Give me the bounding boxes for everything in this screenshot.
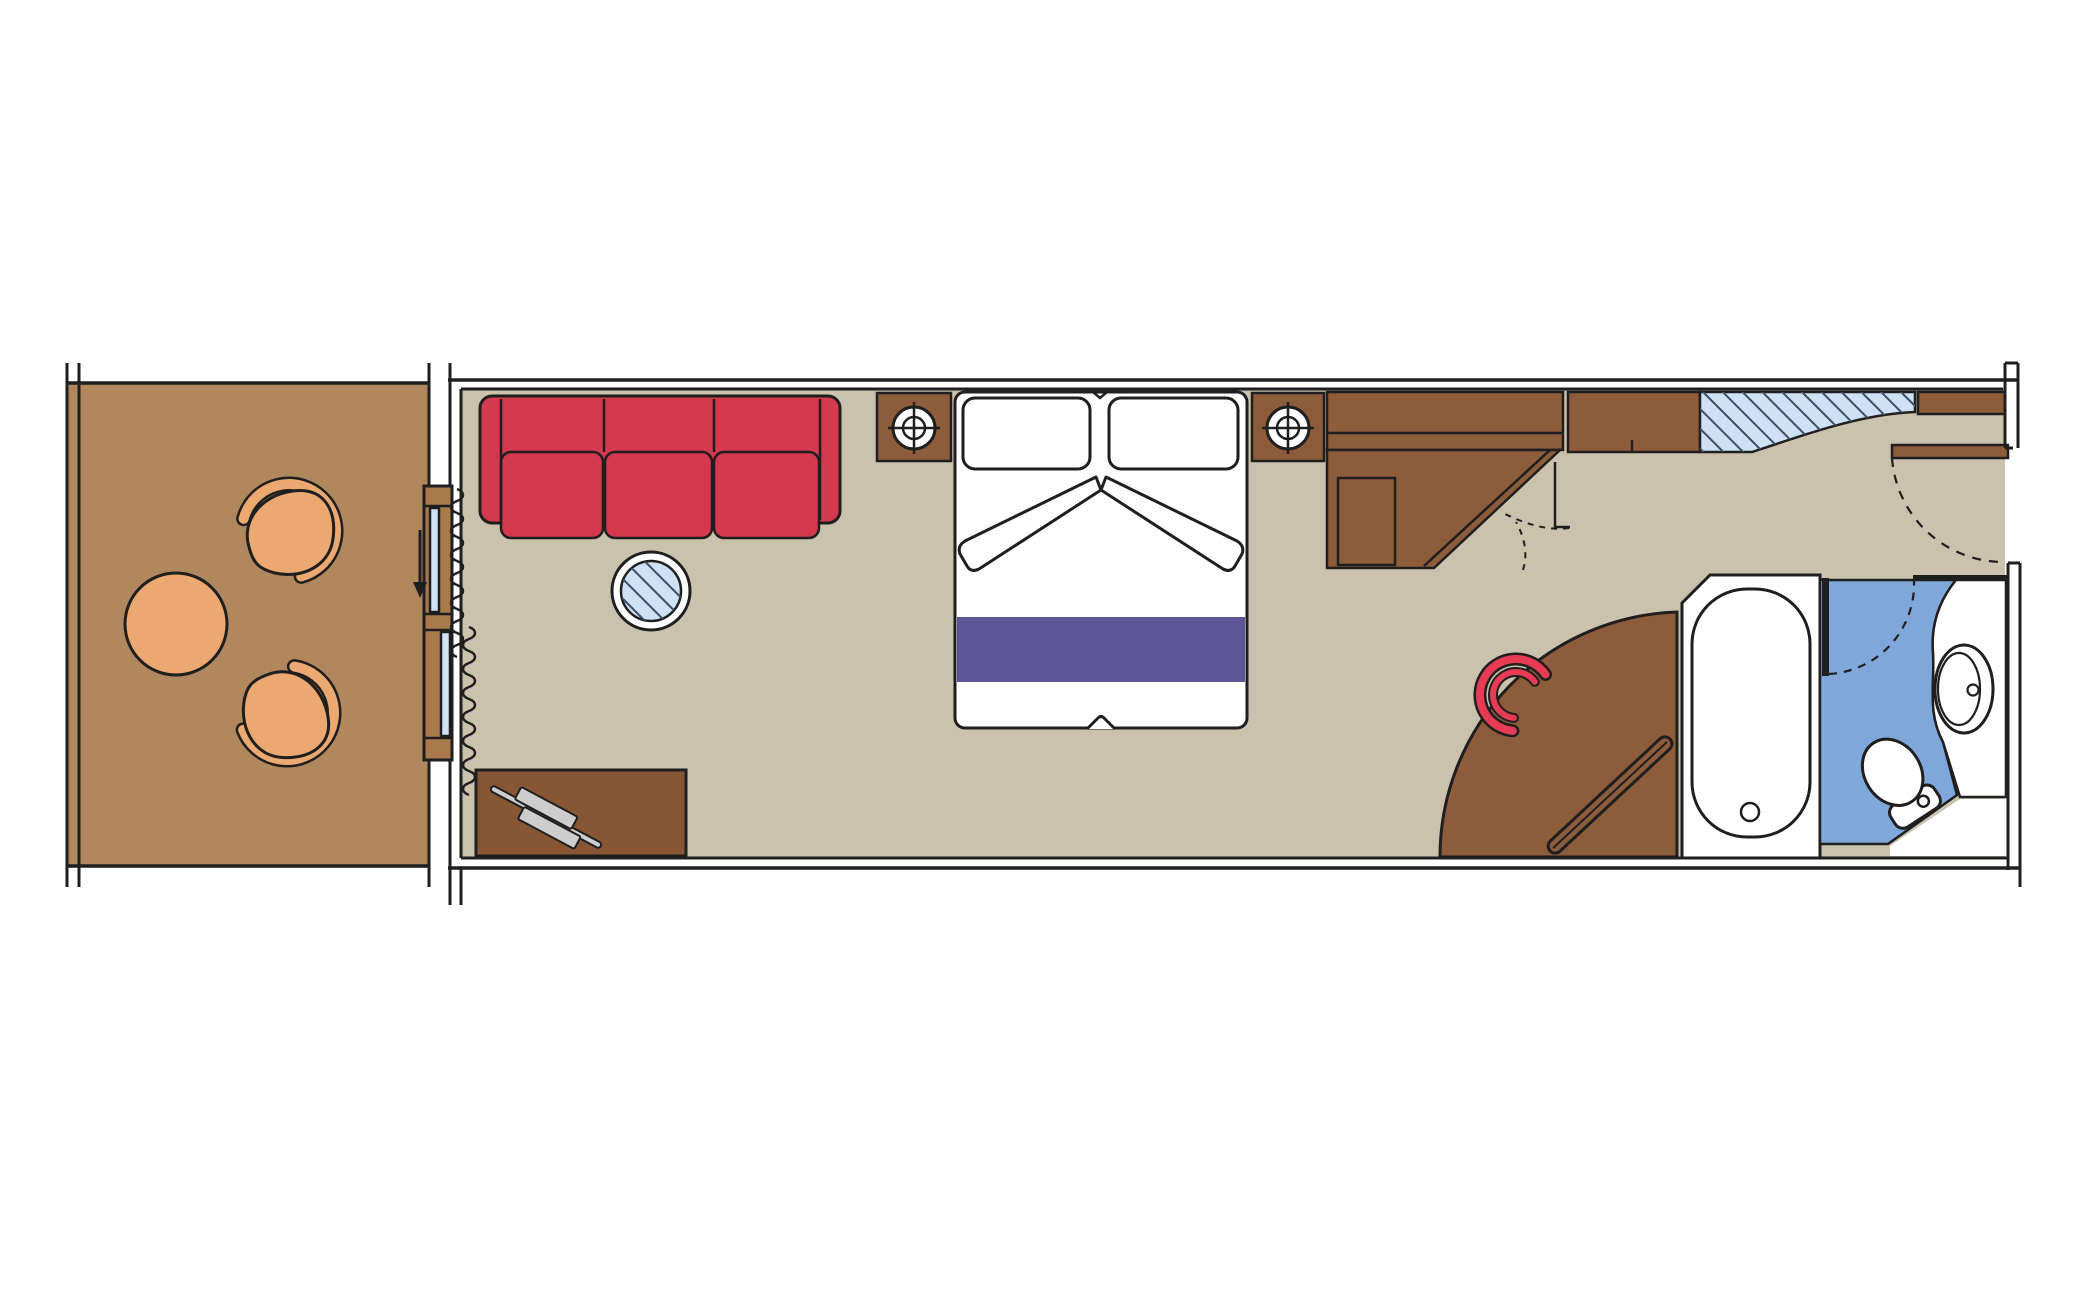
pillow <box>963 398 1090 469</box>
door-glass-pane <box>430 508 439 612</box>
balcony-armchair-1 <box>244 484 336 576</box>
floor-plan-page: Stateroom floor plan with private balcon… <box>0 0 2099 1299</box>
bed-runner <box>957 617 1245 682</box>
nightstand-right <box>1252 393 1324 461</box>
sofa-cushion <box>714 452 819 538</box>
sofa-cushion <box>501 452 603 538</box>
sideboard-desk <box>476 770 686 859</box>
wardrobe-safe <box>1338 478 1395 565</box>
bathtub <box>1692 589 1810 837</box>
door-glass-pane <box>441 632 450 736</box>
washbasin <box>1935 645 1993 733</box>
minibar-cabinet <box>1568 392 1700 452</box>
balcony-table <box>125 573 227 675</box>
bathroom-door-leaf <box>1822 578 1829 676</box>
balcony <box>67 363 429 887</box>
entry-shelf <box>1918 392 2005 414</box>
sofa <box>480 396 840 538</box>
balcony-floor <box>68 384 429 866</box>
pillow <box>1109 398 1238 469</box>
floor-plan: Stateroom floor plan with private balcon… <box>0 0 2099 1299</box>
glass-coffee-table <box>612 552 690 630</box>
bathroom <box>1682 575 2008 858</box>
sofa-cushion <box>605 452 712 538</box>
nightstand-left <box>877 393 951 461</box>
double-bed <box>955 392 1247 729</box>
entrance-door-leaf <box>1892 445 2008 458</box>
